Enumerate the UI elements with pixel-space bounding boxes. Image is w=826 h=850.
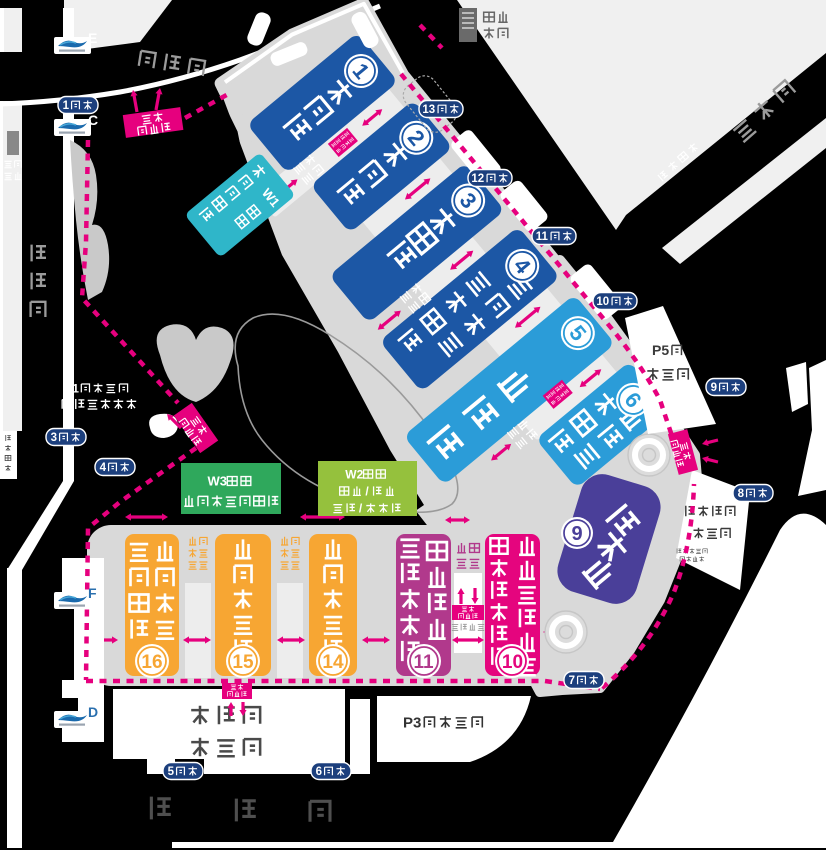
svg-text:D: D: [88, 704, 98, 720]
svg-text:C: C: [88, 112, 98, 128]
svg-text:3: 3: [51, 432, 57, 444]
svg-text:9: 9: [571, 523, 582, 545]
svg-text:10: 10: [502, 652, 523, 673]
svg-text:13: 13: [422, 104, 435, 116]
svg-text:P3: P3: [403, 714, 421, 731]
svg-text:15: 15: [232, 652, 254, 673]
svg-text:10: 10: [596, 296, 609, 308]
svg-text:16: 16: [141, 652, 162, 673]
svg-text:9: 9: [711, 382, 717, 394]
svg-text:P5: P5: [652, 342, 669, 358]
svg-text:1: 1: [63, 100, 70, 112]
svg-text:7: 7: [569, 675, 575, 687]
svg-text:5: 5: [168, 766, 175, 778]
svg-text:W3: W3: [207, 474, 227, 489]
svg-text:11: 11: [536, 231, 549, 243]
svg-text:14: 14: [322, 652, 344, 673]
svg-text:6: 6: [316, 766, 322, 778]
svg-text:P1: P1: [64, 381, 79, 395]
svg-text:11: 11: [413, 652, 434, 673]
svg-text:E: E: [88, 30, 97, 46]
svg-text:W2: W2: [345, 467, 363, 481]
svg-text:12: 12: [471, 173, 484, 185]
svg-text:8: 8: [738, 488, 745, 500]
svg-text:F: F: [88, 585, 97, 601]
svg-text:4: 4: [100, 462, 107, 474]
